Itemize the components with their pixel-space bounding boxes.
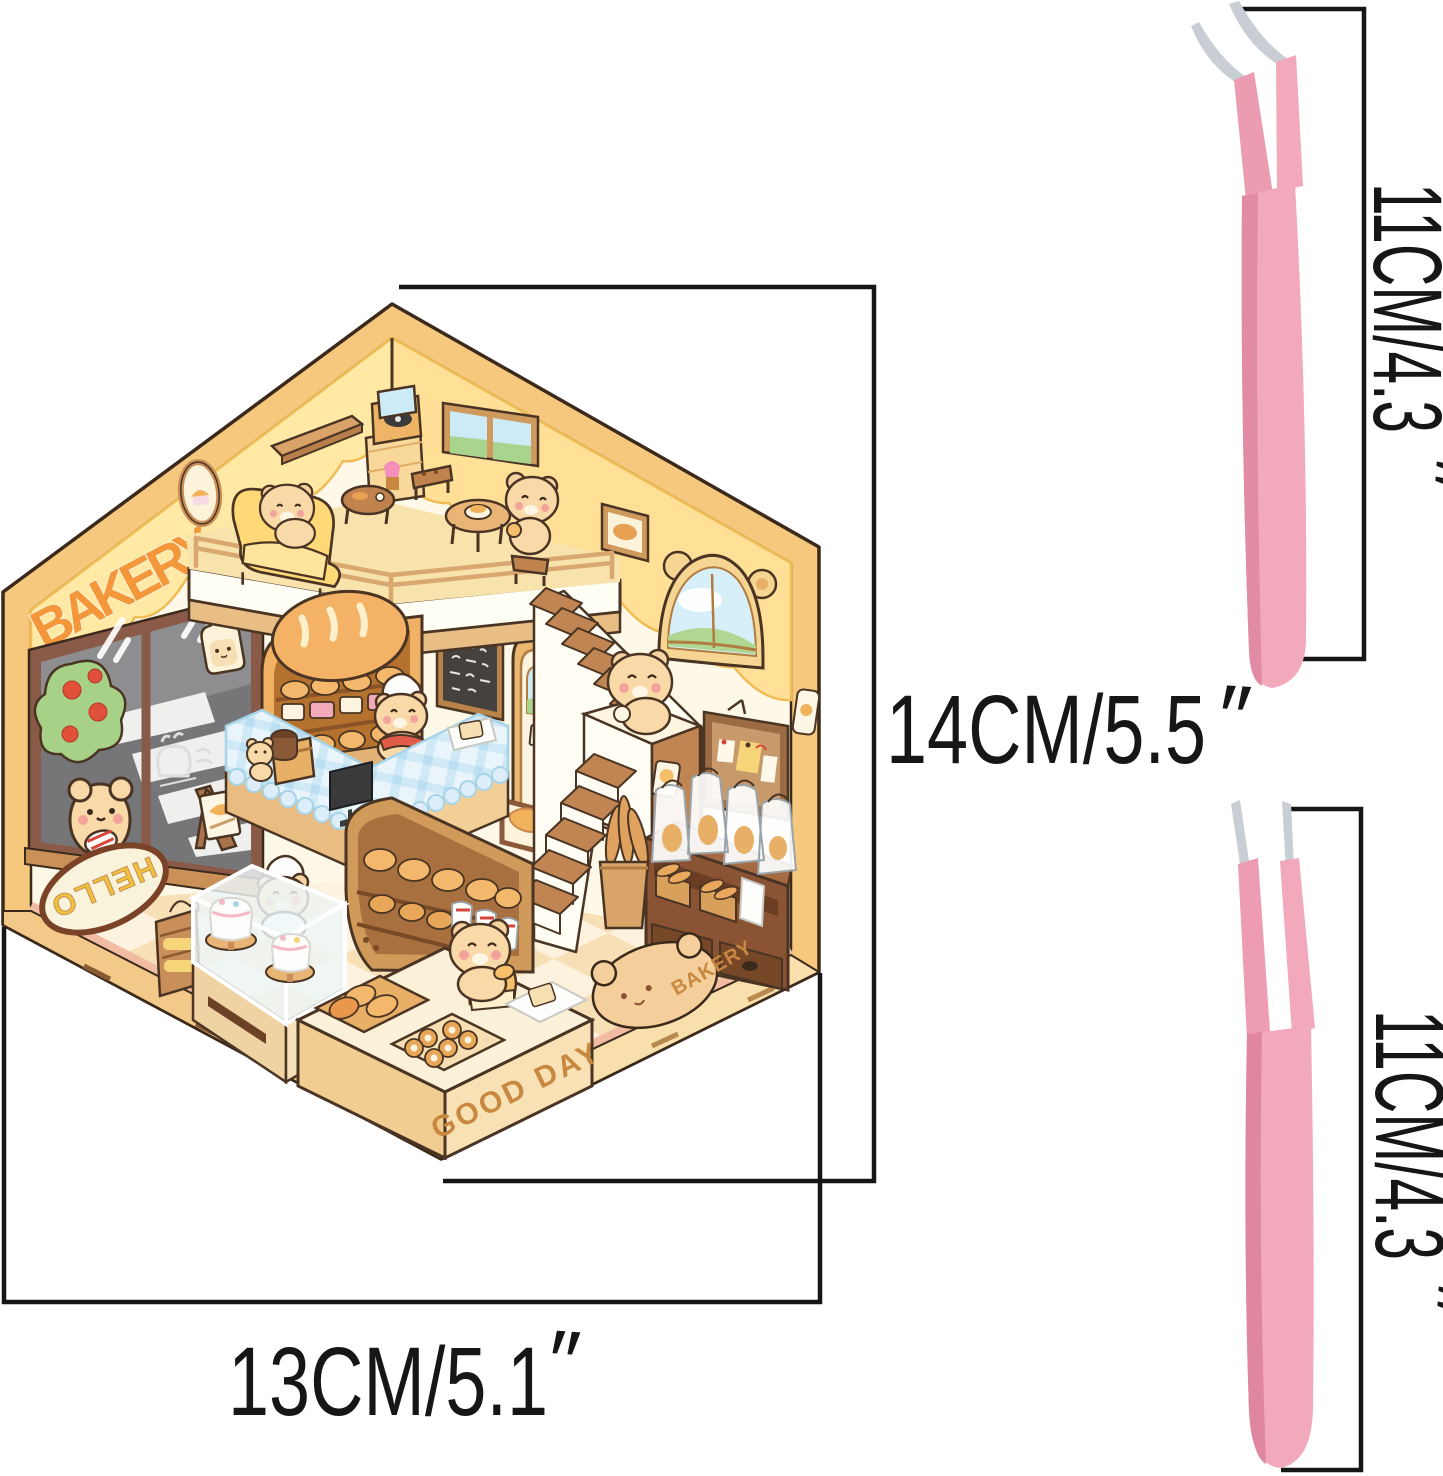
svg-text:13CM/5.1: 13CM/5.1 [228,1327,548,1436]
svg-text:11CM/4.3: 11CM/4.3 [1353,183,1443,433]
svg-text:14CM/5.5: 14CM/5.5 [886,675,1206,784]
svg-text:″: ″ [1215,666,1255,770]
svg-text:″: ″ [545,1312,584,1414]
svg-text:″: ″ [1376,454,1443,493]
svg-text:″: ″ [1378,1279,1443,1318]
svg-text:11CM/4.3: 11CM/4.3 [1355,1010,1443,1260]
